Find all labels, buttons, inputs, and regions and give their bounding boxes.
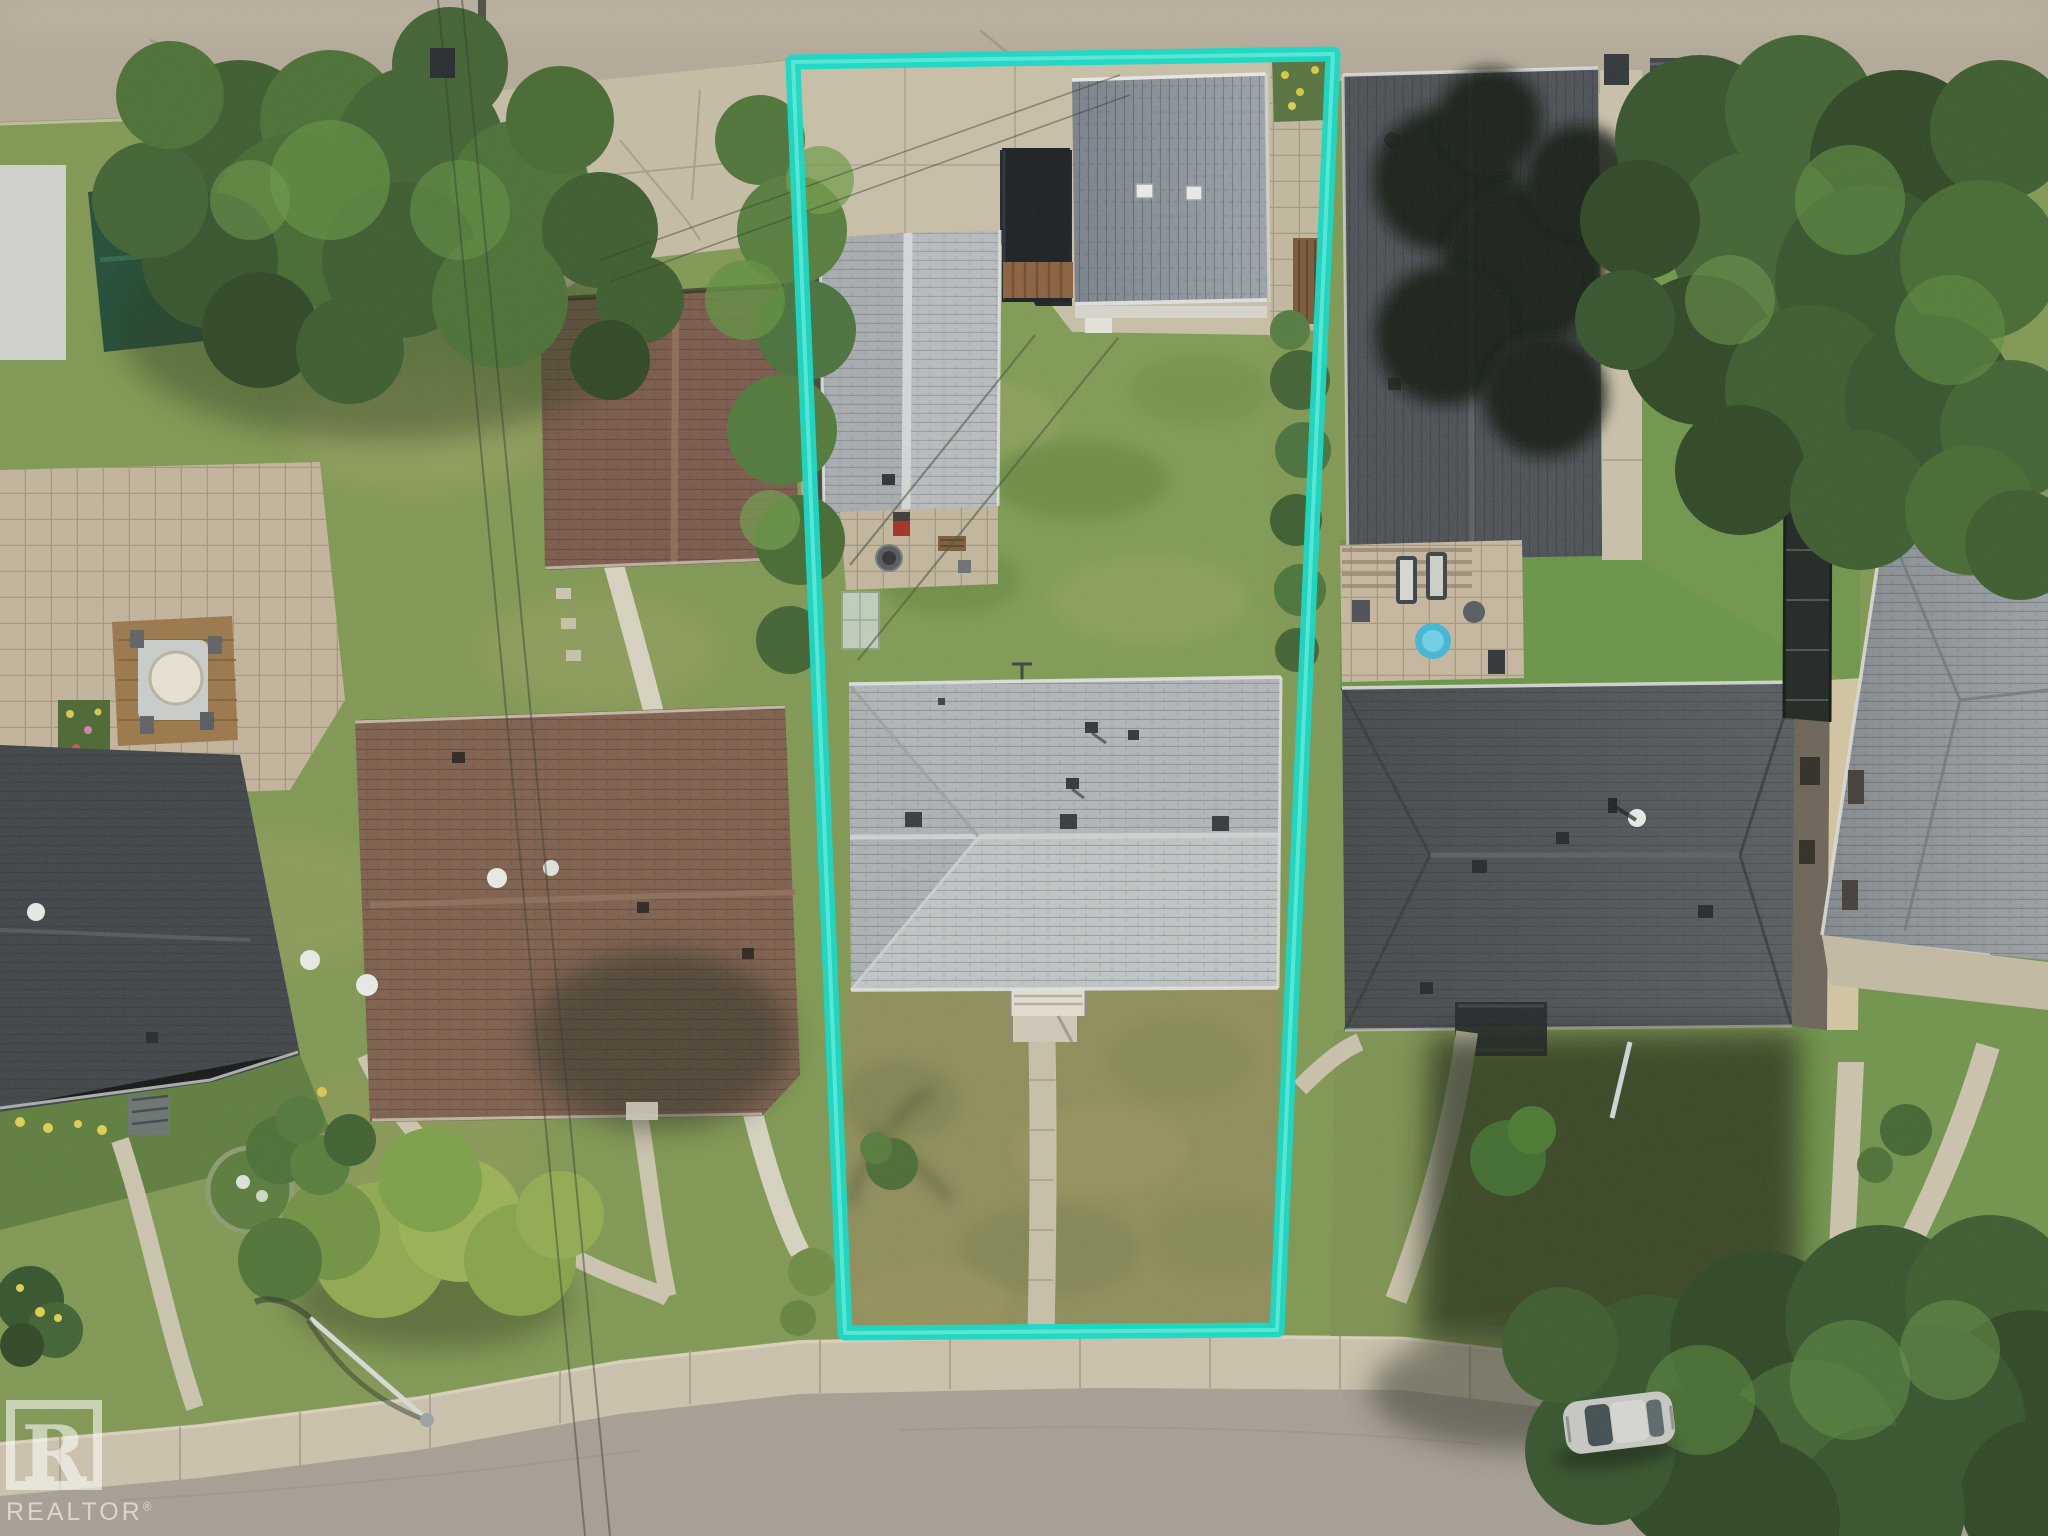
aerial-scene — [0, 0, 2048, 1536]
realtor-watermark: R REALTOR® — [6, 1400, 152, 1527]
realtor-logo-letter: R — [22, 1423, 87, 1487]
photo-grain — [0, 0, 2048, 1536]
registered-mark: ® — [143, 1500, 152, 1514]
realtor-watermark-text: REALTOR® — [6, 1498, 152, 1527]
realtor-logo: R — [6, 1400, 102, 1490]
aerial-photo: R REALTOR® — [0, 0, 2048, 1536]
